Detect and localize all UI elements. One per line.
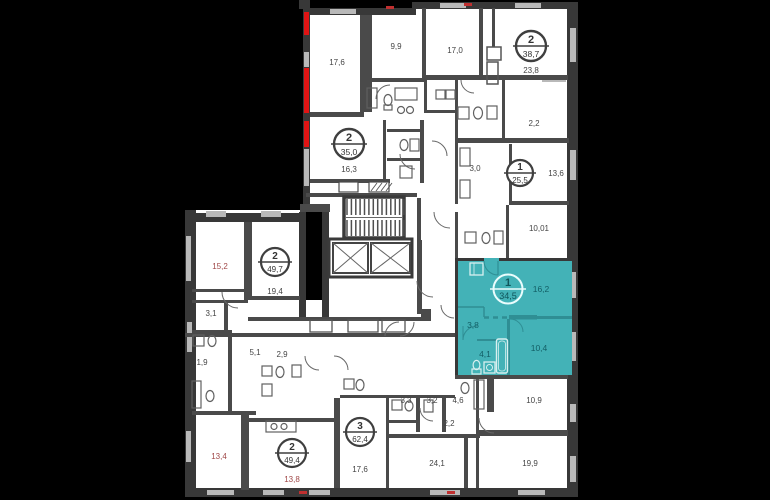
- svg-text:2: 2: [272, 251, 278, 262]
- svg-text:1,9: 1,9: [196, 358, 208, 367]
- svg-text:13,4: 13,4: [211, 452, 227, 461]
- svg-text:2: 2: [528, 34, 534, 46]
- svg-text:17,6: 17,6: [352, 465, 368, 474]
- svg-text:2,2: 2,2: [528, 119, 540, 128]
- svg-text:2: 2: [289, 442, 295, 453]
- svg-text:34,5: 34,5: [499, 291, 517, 301]
- svg-text:15,2: 15,2: [212, 262, 228, 271]
- svg-text:13,8: 13,8: [284, 475, 300, 484]
- svg-text:3,0: 3,0: [469, 164, 481, 173]
- svg-text:17,6: 17,6: [329, 58, 345, 67]
- svg-text:3: 3: [357, 421, 363, 432]
- svg-text:19,4: 19,4: [267, 287, 283, 296]
- svg-text:62,4: 62,4: [352, 435, 368, 444]
- svg-text:17,0: 17,0: [447, 46, 463, 55]
- svg-text:2,2: 2,2: [443, 419, 455, 428]
- svg-text:16,3: 16,3: [341, 165, 357, 174]
- svg-text:1: 1: [517, 162, 523, 173]
- svg-text:49,7: 49,7: [267, 265, 283, 274]
- svg-text:10,4: 10,4: [531, 343, 548, 353]
- svg-text:10,9: 10,9: [526, 396, 542, 405]
- svg-text:1: 1: [505, 277, 511, 289]
- svg-text:3,8: 3,8: [467, 320, 479, 330]
- svg-text:38,7: 38,7: [523, 49, 540, 59]
- svg-text:10,01: 10,01: [529, 224, 550, 233]
- svg-text:49,4: 49,4: [284, 456, 300, 465]
- svg-text:35,0: 35,0: [341, 147, 358, 157]
- svg-text:2: 2: [346, 132, 352, 144]
- svg-text:3,2: 3,2: [426, 396, 438, 405]
- svg-text:4,1: 4,1: [479, 349, 491, 359]
- svg-text:25,5: 25,5: [512, 176, 528, 185]
- svg-text:4,6: 4,6: [452, 396, 464, 405]
- svg-text:23,8: 23,8: [523, 66, 539, 75]
- svg-text:9,9: 9,9: [390, 42, 402, 51]
- svg-text:13,6: 13,6: [548, 169, 564, 178]
- svg-text:5,1: 5,1: [249, 348, 261, 357]
- svg-text:3,1: 3,1: [205, 309, 217, 318]
- svg-text:24,1: 24,1: [429, 459, 445, 468]
- svg-text:16,2: 16,2: [533, 284, 550, 294]
- svg-text:19,9: 19,9: [522, 459, 538, 468]
- svg-text:2,9: 2,9: [276, 350, 288, 359]
- svg-text:3,3: 3,3: [400, 396, 412, 405]
